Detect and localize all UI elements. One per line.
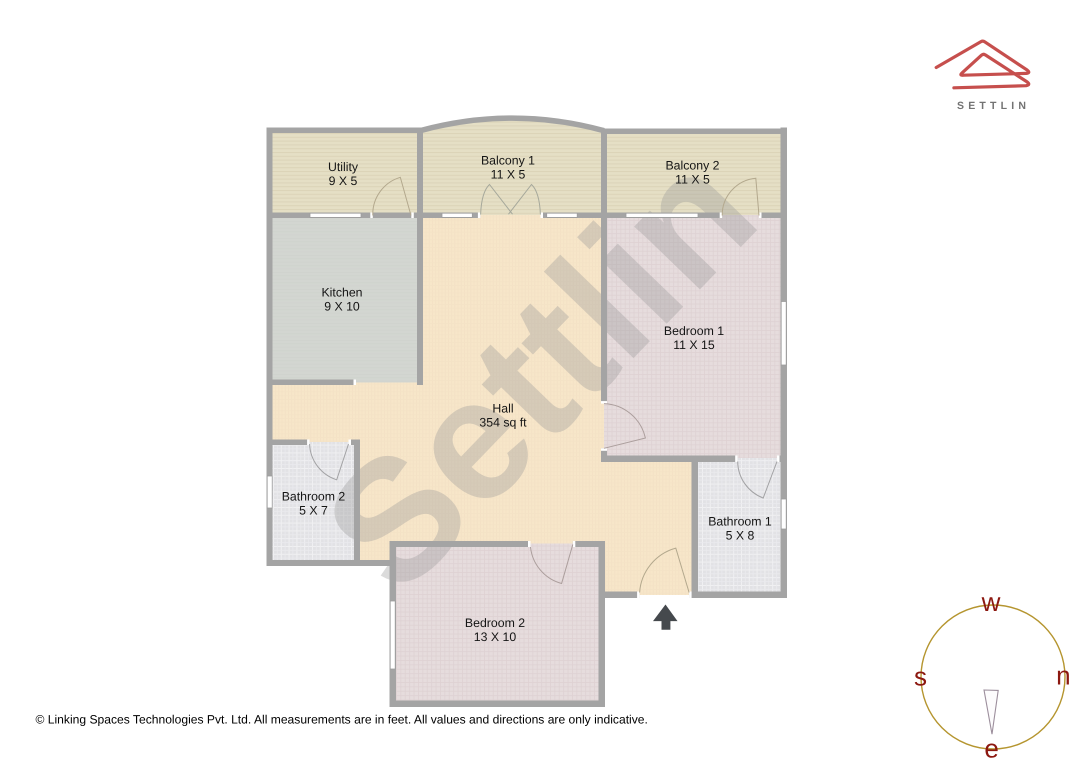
svg-text:n: n (1056, 661, 1070, 691)
svg-text:Bedroom 1: Bedroom 1 (664, 324, 724, 338)
svg-text:Kitchen: Kitchen (321, 285, 362, 299)
svg-text:9 X 10: 9 X 10 (324, 299, 360, 313)
svg-text:e: e (984, 734, 998, 764)
svg-text:SETTLIN: SETTLIN (957, 100, 1030, 112)
svg-text:w: w (981, 587, 1001, 617)
svg-text:354 sq ft: 354 sq ft (479, 415, 527, 429)
svg-text:5 X 8: 5 X 8 (726, 528, 755, 542)
svg-text:Hall: Hall (492, 401, 513, 415)
svg-text:5 X 7: 5 X 7 (299, 503, 328, 517)
svg-text:Balcony 1: Balcony 1 (481, 153, 535, 167)
svg-text:Balcony 2: Balcony 2 (665, 158, 719, 172)
svg-text:9 X 5: 9 X 5 (329, 174, 358, 188)
svg-text:11 X 15: 11 X 15 (673, 338, 715, 352)
svg-text:Bedroom 2: Bedroom 2 (465, 616, 525, 630)
svg-text:11 X 5: 11 X 5 (491, 167, 526, 181)
svg-text:© Linking Spaces Technologies: © Linking Spaces Technologies Pvt. Ltd. … (36, 713, 648, 727)
svg-text:Utility: Utility (328, 160, 359, 174)
svg-text:s: s (914, 662, 927, 692)
svg-text:Bathroom 2: Bathroom 2 (282, 489, 346, 503)
svg-text:13 X 10: 13 X 10 (474, 630, 517, 644)
svg-text:Bathroom 1: Bathroom 1 (708, 514, 772, 528)
svg-text:11 X 5: 11 X 5 (675, 172, 710, 186)
